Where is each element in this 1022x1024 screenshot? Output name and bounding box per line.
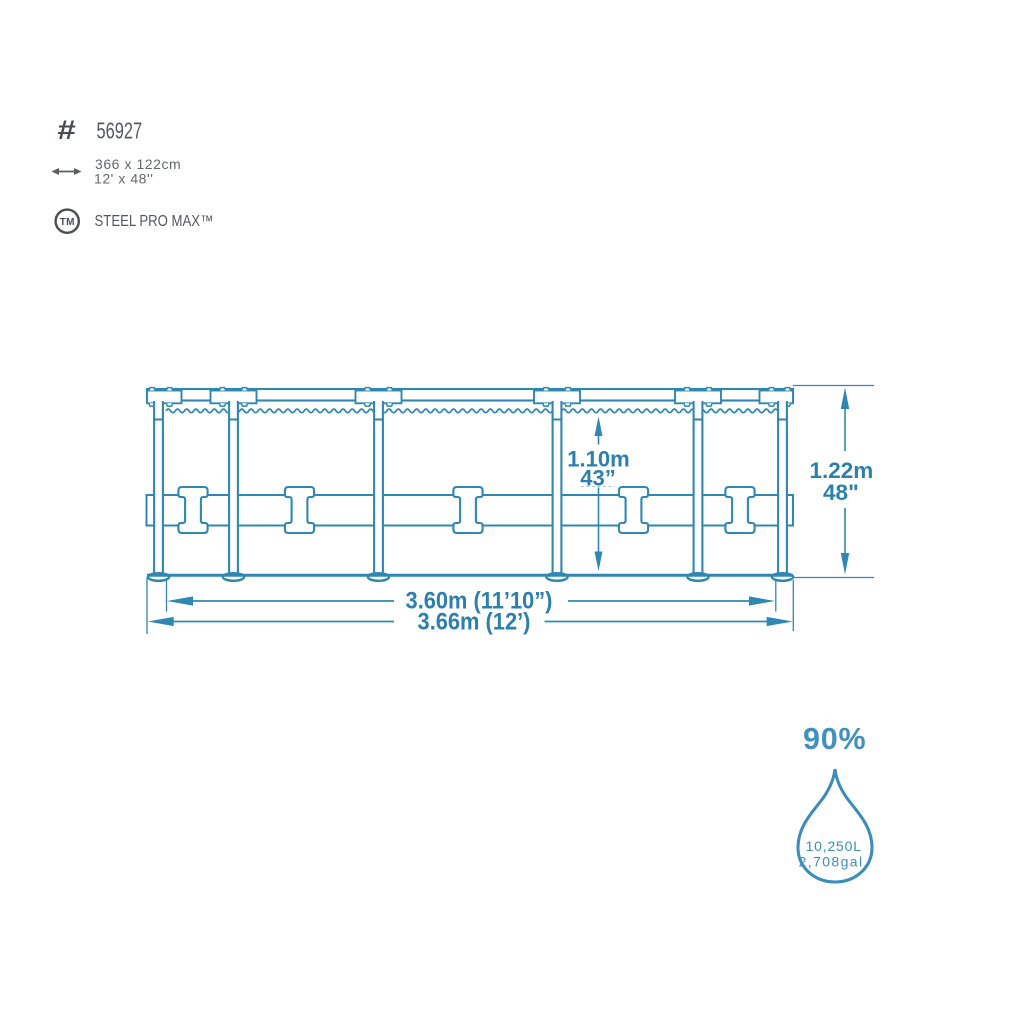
svg-text:3.66m (12’): 3.66m (12’) xyxy=(418,608,531,635)
svg-text:90%: 90% xyxy=(803,722,866,756)
svg-text:10,250L: 10,250L xyxy=(806,838,862,854)
svg-text:STEEL PRO MAX™: STEEL PRO MAX™ xyxy=(95,213,214,230)
svg-text:12' x 48'': 12' x 48'' xyxy=(94,170,153,186)
svg-text:#: # xyxy=(58,115,77,145)
svg-text:2,708gal.: 2,708gal. xyxy=(799,854,869,870)
svg-text:TM: TM xyxy=(60,217,75,228)
svg-text:48": 48" xyxy=(823,480,859,505)
svg-text:56927: 56927 xyxy=(97,119,143,144)
